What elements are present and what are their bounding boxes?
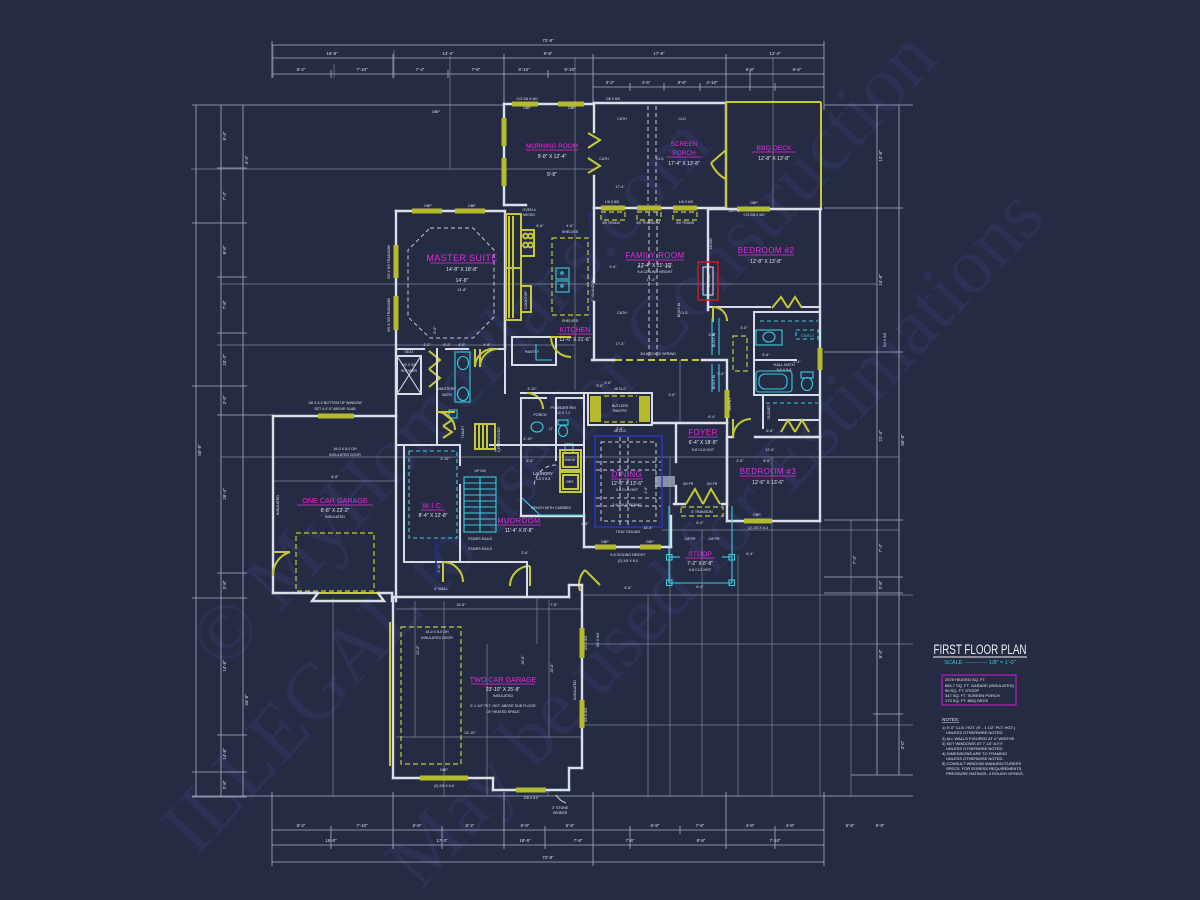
- svg-text:5'-6": 5'-6": [526, 459, 534, 463]
- svg-text:16-0 X 8-0 OH: 16-0 X 8-0 OH: [425, 630, 449, 634]
- svg-text:POWDER RM: POWDER RM: [550, 405, 575, 410]
- svg-text:6'-4": 6'-4": [696, 585, 704, 589]
- svg-text:COOKTOP: COOKTOP: [524, 290, 528, 309]
- svg-text:5/0 X 5/0 TRANSOM: 5/0 X 5/0 TRANSOM: [387, 298, 391, 331]
- svg-text:3-6 FAUX BEAMS: 3-6 FAUX BEAMS: [612, 503, 642, 507]
- svg-text:PRESSURE RATINGS, 4 ROUGH OPNG: PRESSURE RATINGS, 4 ROUGH OPNGS.: [946, 771, 1024, 776]
- svg-text:6'-8": 6'-8": [746, 67, 755, 72]
- svg-text:7'-4": 7'-4": [878, 543, 883, 552]
- svg-text:72'-8": 72'-8": [542, 38, 554, 43]
- svg-text:WASH: WASH: [565, 458, 576, 462]
- svg-text:5/0 X 5/0 TRANSOM: 5/0 X 5/0 TRANSOM: [387, 245, 391, 278]
- svg-text:2/8 BO: 2/8 BO: [709, 238, 713, 249]
- svg-text:4" WALL: 4" WALL: [434, 587, 448, 591]
- svg-text:BENCH WITH CUBBIES: BENCH WITH CUBBIES: [531, 506, 571, 510]
- svg-text:7'-6": 7'-6": [626, 838, 635, 843]
- svg-text:STAIRS RAILS: STAIRS RAILS: [468, 547, 493, 551]
- svg-text:8'-4": 8'-4": [878, 649, 883, 658]
- svg-text:4'-6": 4'-6": [665, 265, 673, 269]
- svg-text:23'-8": 23'-8": [416, 645, 420, 655]
- svg-text:2'-4": 2'-4": [717, 372, 725, 376]
- svg-text:SCALE: ------------ 1/8" = 1'-: SCALE: ------------ 1/8" = 1'-0": [944, 660, 1015, 666]
- svg-text:FREESTNDG: FREESTNDG: [497, 427, 501, 449]
- svg-text:SHOWER: SHOWER: [401, 369, 418, 373]
- svg-text:18'-8": 18'-8": [519, 838, 531, 843]
- svg-text:2/8 X 6/0: 2/8 X 6/0: [606, 97, 620, 101]
- svg-text:14'-8": 14'-8": [222, 748, 227, 760]
- svg-text:2'-6": 2'-6": [736, 459, 744, 463]
- svg-text:4'-0": 4'-0": [458, 343, 466, 347]
- svg-text:3/4 X 6/8: 3/4 X 6/8: [883, 333, 887, 347]
- svg-text:2/8 PR: 2/8 PR: [709, 537, 720, 541]
- svg-text:OF HEATED SPACE: OF HEATED SPACE: [486, 710, 520, 714]
- svg-text:CLG: CLG: [680, 311, 688, 315]
- svg-text:11'-6" X 21'-6": 11'-6" X 21'-6": [559, 337, 590, 343]
- svg-text:17'-4": 17'-4": [646, 278, 656, 282]
- svg-text:DBP: DBP: [424, 204, 432, 208]
- svg-text:3'-10": 3'-10": [437, 563, 441, 573]
- svg-text:CATH: CATH: [617, 311, 627, 315]
- svg-text:PANTRY: PANTRY: [525, 350, 540, 354]
- svg-text:10'-2": 10'-2": [222, 354, 227, 366]
- svg-text:4'-6": 4'-6": [609, 265, 617, 269]
- svg-text:4'-6": 4'-6": [483, 343, 491, 347]
- svg-text:56'-8": 56'-8": [900, 434, 905, 446]
- svg-text:16'-0": 16'-0": [643, 526, 653, 530]
- svg-text:3/0 FR: 3/0 FR: [683, 482, 694, 486]
- svg-text:6'-6": 6'-6": [763, 459, 771, 463]
- svg-text:DBP: DBP: [646, 540, 654, 544]
- svg-text:DBP: DBP: [432, 110, 440, 114]
- svg-text:LAUNDRY: LAUNDRY: [533, 471, 553, 476]
- svg-text:3/0 X 6/0: 3/0 X 6/0: [584, 708, 588, 722]
- svg-text:173 SQ. FT. BBQ DECK: 173 SQ. FT. BBQ DECK: [945, 698, 988, 703]
- svg-text:3'-6": 3'-6": [521, 551, 529, 555]
- svg-text:6'-8": 6'-8": [413, 823, 422, 828]
- svg-text:11'-4" X 8'-8": 11'-4" X 8'-8": [505, 528, 534, 534]
- svg-text:HALL BATH: HALL BATH: [773, 362, 794, 367]
- svg-text:3/0 TRANSOM: 3/0 TRANSOM: [636, 221, 660, 225]
- svg-text:8'-8": 8'-8": [222, 245, 227, 254]
- svg-text:DBP: DBP: [750, 201, 758, 205]
- svg-text:2'-4": 2'-4": [793, 360, 801, 364]
- svg-text:9-8 CLG HGT: 9-8 CLG HGT: [616, 488, 639, 492]
- svg-text:5'-6": 5'-6": [596, 384, 604, 388]
- svg-text:4'-10": 4'-10": [440, 457, 450, 461]
- svg-text:8'-0": 8'-0": [433, 326, 437, 334]
- svg-text:(2) 3/4 X 6-0: (2) 3/4 X 6-0: [618, 559, 638, 563]
- svg-text:12'-4": 12'-4": [769, 51, 781, 56]
- svg-text:3'-2": 3'-2": [423, 343, 431, 347]
- svg-text:DRY: DRY: [566, 480, 574, 484]
- svg-text:7'-8": 7'-8": [574, 838, 583, 843]
- svg-text:MORNING ROOM: MORNING ROOM: [526, 143, 578, 150]
- svg-text:2'-8": 2'-8": [878, 580, 883, 589]
- svg-text:UNLESS OTHERWISE NOTED.: UNLESS OTHERWISE NOTED.: [946, 730, 1004, 735]
- svg-text:6'-6": 6'-6": [766, 429, 774, 433]
- svg-text:SCREEN: SCREEN: [670, 141, 697, 148]
- svg-text:TOILET: TOILET: [461, 425, 465, 438]
- svg-text:DBP: DBP: [440, 768, 448, 772]
- svg-text:3/0 X 6/0: 3/0 X 6/0: [584, 636, 588, 650]
- svg-text:SHELVES: SHELVES: [562, 230, 579, 234]
- svg-text:21'-4": 21'-4": [878, 430, 883, 442]
- svg-text:3/0 X 3/0: 3/0 X 3/0: [402, 363, 416, 367]
- svg-text:BEDROOM #2: BEDROOM #2: [738, 246, 795, 255]
- svg-text:72'-8": 72'-8": [542, 855, 554, 860]
- svg-text:INSULATED: INSULATED: [573, 680, 577, 700]
- svg-text:KITCHEN: KITCHEN: [560, 327, 591, 334]
- svg-text:4'-6": 4'-6": [566, 224, 574, 228]
- svg-text:8'-2": 8'-2": [443, 343, 451, 347]
- svg-text:5'-6": 5'-6": [616, 427, 624, 431]
- svg-text:3/0 FR: 3/0 FR: [707, 482, 718, 486]
- svg-text:3'-0": 3'-0": [740, 326, 748, 330]
- svg-text:PANTRY: PANTRY: [613, 409, 628, 413]
- svg-text:6-8 X 6-8: 6-8 X 6-8: [536, 477, 551, 481]
- svg-text:5-0 X 9-8: 5-0 X 9-8: [777, 368, 792, 372]
- svg-text:12'-8" X 13'-8": 12'-8" X 13'-8": [750, 259, 782, 265]
- svg-text:3/0 TRANS: 3/0 TRANS: [676, 221, 695, 225]
- svg-text:STAIRS RAILS: STAIRS RAILS: [468, 537, 493, 541]
- svg-text:16-0 X 8-0 OH: 16-0 X 8-0 OH: [333, 447, 357, 451]
- svg-text:1/6 X 6/0: 1/6 X 6/0: [679, 200, 693, 204]
- svg-text:17'-4": 17'-4": [615, 185, 625, 189]
- svg-text:DBP: DBP: [753, 513, 761, 517]
- svg-text:4'-6": 4'-6": [637, 265, 645, 269]
- svg-text:7'-10": 7'-10": [769, 838, 781, 843]
- svg-text:INSULATED: INSULATED: [325, 515, 345, 519]
- svg-text:56'-8": 56'-8": [197, 444, 202, 456]
- svg-text:14'-4": 14'-4": [442, 51, 454, 56]
- svg-text:PORCH: PORCH: [534, 413, 547, 417]
- svg-text:6'-4" X 18'-8": 6'-4" X 18'-8": [689, 440, 718, 446]
- svg-text:12'-6": 12'-6": [765, 448, 775, 452]
- svg-text:9'-8" X 12'-4": 9'-8" X 12'-4": [538, 154, 567, 160]
- svg-text:6'-4": 6'-4": [696, 521, 704, 525]
- svg-text:(2) 2/8 X 6-0: (2) 2/8 X 6-0: [434, 784, 454, 788]
- svg-text:TWO CAR GARAGE: TWO CAR GARAGE: [470, 675, 537, 684]
- svg-text:2'-8": 2'-8": [581, 522, 589, 526]
- svg-text:5'-8": 5'-8": [846, 823, 855, 828]
- svg-text:3'-8": 3'-8": [222, 580, 227, 589]
- svg-text:INSULATED DOOR: INSULATED DOOR: [329, 453, 361, 457]
- svg-text:8'-2": 8'-2": [297, 67, 306, 72]
- svg-text:4'-8": 4'-8": [786, 823, 795, 828]
- svg-text:3'-2": 3'-2": [606, 80, 615, 85]
- svg-text:TOWELS: TOWELS: [800, 334, 813, 338]
- svg-text:12'-6" X 13'-6": 12'-6" X 13'-6": [611, 481, 643, 487]
- svg-text:7'-10": 7'-10": [356, 67, 368, 72]
- svg-text:FOYER: FOYER: [688, 428, 718, 437]
- svg-text:DBP: DBP: [468, 204, 476, 208]
- svg-text:DBP: DBP: [523, 106, 531, 110]
- svg-text:DINING: DINING: [612, 470, 642, 479]
- svg-text:7'-6": 7'-6": [472, 67, 481, 72]
- svg-text:BUILT-IN: BUILT-IN: [677, 302, 681, 317]
- svg-text:INSULATED DOOR: INSULATED DOOR: [421, 636, 453, 640]
- svg-text:C/3 2/8 X 6/0: C/3 2/8 X 6/0: [517, 97, 538, 101]
- svg-text:5'-6": 5'-6": [604, 381, 612, 385]
- svg-text:6'-8": 6'-8": [624, 586, 632, 590]
- svg-text:25'-8": 25'-8": [550, 663, 554, 673]
- svg-text:7'-6": 7'-6": [550, 603, 558, 607]
- svg-text:BATH: BATH: [442, 393, 452, 397]
- svg-text:MASTERS: MASTERS: [438, 387, 456, 391]
- svg-text:C/3 2/8 X 6/0: C/3 2/8 X 6/0: [744, 213, 765, 217]
- svg-text:8'-4": 8'-4": [222, 131, 227, 140]
- svg-text:9'-8": 9'-8": [678, 80, 687, 85]
- svg-text:12'-6" X 13'-6": 12'-6" X 13'-6": [752, 480, 784, 486]
- svg-text:MASTER SUITE: MASTER SUITE: [426, 253, 497, 263]
- svg-text:BBQ DECK: BBQ DECK: [756, 145, 792, 152]
- svg-text:VENEER: VENEER: [553, 811, 568, 815]
- svg-text:14'-8" X 18'-8": 14'-8" X 18'-8": [446, 267, 478, 273]
- svg-text:17'-8": 17'-8": [653, 51, 665, 56]
- svg-text:FAMILY ROOM: FAMILY ROOM: [625, 251, 684, 260]
- svg-text:CLG: CLG: [656, 157, 664, 161]
- svg-text:2/8 PR: 2/8 PR: [685, 537, 696, 541]
- svg-text:MICRO: MICRO: [523, 213, 535, 217]
- svg-text:14'-8": 14'-8": [222, 660, 227, 672]
- svg-text:12'-8" X 13'-8": 12'-8" X 13'-8": [758, 156, 790, 162]
- svg-text:3'-2": 3'-2": [494, 449, 502, 453]
- svg-text:8'-2": 8'-2": [466, 823, 475, 828]
- svg-text:INSULATED: INSULATED: [276, 495, 280, 515]
- svg-text:34'-8": 34'-8": [244, 694, 249, 706]
- svg-text:5' TRANSOM: 5' TRANSOM: [691, 510, 713, 514]
- svg-text:2/8 X 6-0: 2/8 X 6-0: [524, 796, 539, 800]
- svg-text:13'-8": 13'-8": [878, 150, 883, 162]
- svg-text:ONE CAR GARAGE: ONE CAR GARAGE: [302, 496, 368, 505]
- svg-text:16'-0": 16'-0": [325, 838, 337, 843]
- svg-text:6'-4": 6'-4": [708, 415, 716, 419]
- svg-text:4'-8": 4'-8": [746, 823, 755, 828]
- svg-text:9-8 CLG HGT: 9-8 CLG HGT: [692, 448, 715, 452]
- svg-text:1/6 X 6-0 BOTTOM OF WINDOW: 1/6 X 6-0 BOTTOM OF WINDOW: [308, 401, 362, 405]
- svg-text:5'-8": 5'-8": [566, 823, 575, 828]
- svg-text:3'-4": 3'-4": [708, 333, 716, 337]
- svg-text:8'-8" X 23'-2": 8'-8" X 23'-2": [321, 508, 350, 514]
- svg-text:OVEN 4: OVEN 4: [522, 208, 535, 212]
- svg-text:7'-4": 7'-4": [852, 555, 857, 564]
- svg-text:48 CLG: 48 CLG: [614, 387, 627, 391]
- svg-text:6'-8": 6'-8": [651, 823, 660, 828]
- svg-text:9'-8": 9'-8": [544, 51, 553, 56]
- svg-text:5'-6": 5'-6": [762, 353, 770, 357]
- svg-text:4'-10": 4'-10": [706, 80, 718, 85]
- svg-text:MUDROOM: MUDROOM: [497, 516, 540, 525]
- svg-text:36 ROL: 36 ROL: [707, 275, 711, 287]
- svg-text:STOOP: STOOP: [688, 551, 712, 558]
- svg-text:SHELVES: SHELVES: [562, 319, 579, 323]
- svg-text:9'-1 1/2" PLT. HGT. ABOVE SUB: 9'-1 1/2" PLT. HGT. ABOVE SUB FLOOR: [470, 704, 536, 708]
- svg-text:4'-6": 4'-6": [642, 80, 651, 85]
- svg-text:4'-4": 4'-4": [244, 155, 249, 164]
- svg-text:16'-8": 16'-8": [878, 274, 883, 286]
- svg-text:3-0 X 7-2: 3-0 X 7-2: [556, 411, 571, 415]
- svg-text:9-8 CEILING HEIGHT: 9-8 CEILING HEIGHT: [637, 270, 673, 274]
- svg-text:9-8 CEILING HEIGHT: 9-8 CEILING HEIGHT: [610, 553, 646, 557]
- svg-text:7'-4": 7'-4": [222, 191, 227, 200]
- svg-text:BUTLERS: BUTLERS: [612, 404, 629, 408]
- svg-text:DBP: DBP: [568, 106, 576, 110]
- svg-text:7'-2" X 8'-8": 7'-2" X 8'-8": [687, 561, 713, 567]
- svg-text:14'-8": 14'-8": [456, 278, 469, 284]
- svg-text:17'-2": 17'-2": [436, 838, 448, 843]
- svg-text:3/8 PKT: 3/8 PKT: [728, 397, 732, 411]
- svg-text:1/6 X 6/0: 1/6 X 6/0: [605, 200, 619, 204]
- svg-text:4'-10": 4'-10": [523, 437, 533, 441]
- svg-text:23'-10": 23'-10": [464, 731, 476, 735]
- svg-text:W.I.C.: W.I.C.: [422, 503, 443, 510]
- svg-text:7'-8": 7'-8": [222, 300, 227, 309]
- svg-text:CATH: CATH: [617, 117, 627, 121]
- svg-text:3'-8": 3'-8": [222, 395, 227, 404]
- svg-text:7'-4": 7'-4": [416, 67, 425, 72]
- svg-text:CLOSET: CLOSET: [767, 404, 771, 419]
- svg-text:9-8 CLG HGT: 9-8 CLG HGT: [689, 568, 712, 572]
- svg-text:2" ISLAND ON: 2" ISLAND ON: [591, 278, 595, 302]
- svg-text:9'-8": 9'-8": [547, 172, 557, 178]
- svg-text:3'-6": 3'-6": [668, 393, 676, 397]
- svg-text:6'-8": 6'-8": [876, 823, 885, 828]
- svg-text:3/0 TRANS: 3/0 TRANS: [602, 221, 621, 225]
- svg-text:8'-2": 8'-2": [297, 823, 306, 828]
- svg-text:7'-6": 7'-6": [696, 823, 705, 828]
- svg-text:PORCH: PORCH: [672, 150, 696, 157]
- svg-text:BEDROOM #3: BEDROOM #3: [740, 467, 797, 476]
- svg-text:4'-10": 4'-10": [527, 387, 537, 391]
- svg-text:6'-6": 6'-6": [793, 67, 802, 72]
- svg-text:8'-4" X 12'-8": 8'-4" X 12'-8": [419, 513, 448, 519]
- svg-text:9'-10": 9'-10": [564, 67, 576, 72]
- svg-text:25'-8": 25'-8": [521, 655, 525, 665]
- svg-text:6'-4": 6'-4": [746, 552, 754, 556]
- svg-text:17'-4" X 13'-8": 17'-4" X 13'-8": [668, 161, 700, 167]
- svg-text:9'-10": 9'-10": [518, 67, 530, 72]
- svg-text:3'-0": 3'-0": [900, 740, 905, 749]
- svg-text:2'-6": 2'-6": [644, 486, 648, 494]
- svg-text:8'-8": 8'-8": [697, 838, 706, 843]
- svg-text:2575 HEATED SQ. FT.: 2575 HEATED SQ. FT.: [945, 677, 986, 682]
- svg-text:23'-10" X 25'-8": 23'-10" X 25'-8": [486, 687, 521, 693]
- svg-text:3/4 ARCHED SPRING: 3/4 ARCHED SPRING: [640, 352, 676, 356]
- svg-text:3/0 X 6/0: 3/0 X 6/0: [596, 633, 600, 647]
- svg-text:7'-10": 7'-10": [356, 823, 368, 828]
- svg-text:16'-6": 16'-6": [456, 603, 466, 607]
- svg-text:CATH: CATH: [599, 157, 609, 161]
- svg-text:INSULATED: INSULATED: [493, 694, 513, 698]
- svg-text:SET 4 4'-0" ABOVE SLAB: SET 4 4'-0" ABOVE SLAB: [314, 407, 356, 411]
- svg-text:17'-4": 17'-4": [615, 342, 625, 346]
- svg-text:6'-6": 6'-6": [536, 224, 544, 228]
- svg-text:SEAT: SEAT: [404, 350, 414, 354]
- svg-text:2/8 PR: 2/8 PR: [729, 209, 740, 213]
- svg-text:26'-4": 26'-4": [222, 488, 227, 500]
- svg-text:(2) 2/8 X 6-0: (2) 2/8 X 6-0: [748, 526, 768, 530]
- svg-text:8'-8": 8'-8": [331, 475, 339, 479]
- svg-text:BUILT-IN: BUILT-IN: [712, 374, 716, 389]
- svg-text:CLG: CLG: [678, 117, 686, 121]
- svg-text:FIRST FLOOR PLAN: FIRST FLOOR PLAN: [934, 642, 1027, 657]
- svg-text:14'-8": 14'-8": [457, 288, 467, 292]
- svg-text:NOTES:: NOTES:: [942, 717, 959, 722]
- svg-text:3" STONE: 3" STONE: [552, 806, 569, 810]
- svg-text:DBP: DBP: [601, 540, 609, 544]
- svg-text:16'-8": 16'-8": [326, 51, 338, 56]
- svg-text:2'-8": 2'-8": [222, 780, 227, 789]
- svg-text:TRAY CEILING: TRAY CEILING: [616, 530, 641, 534]
- svg-text:5'-8": 5'-8": [521, 823, 530, 828]
- svg-text:UP DN: UP DN: [474, 469, 486, 473]
